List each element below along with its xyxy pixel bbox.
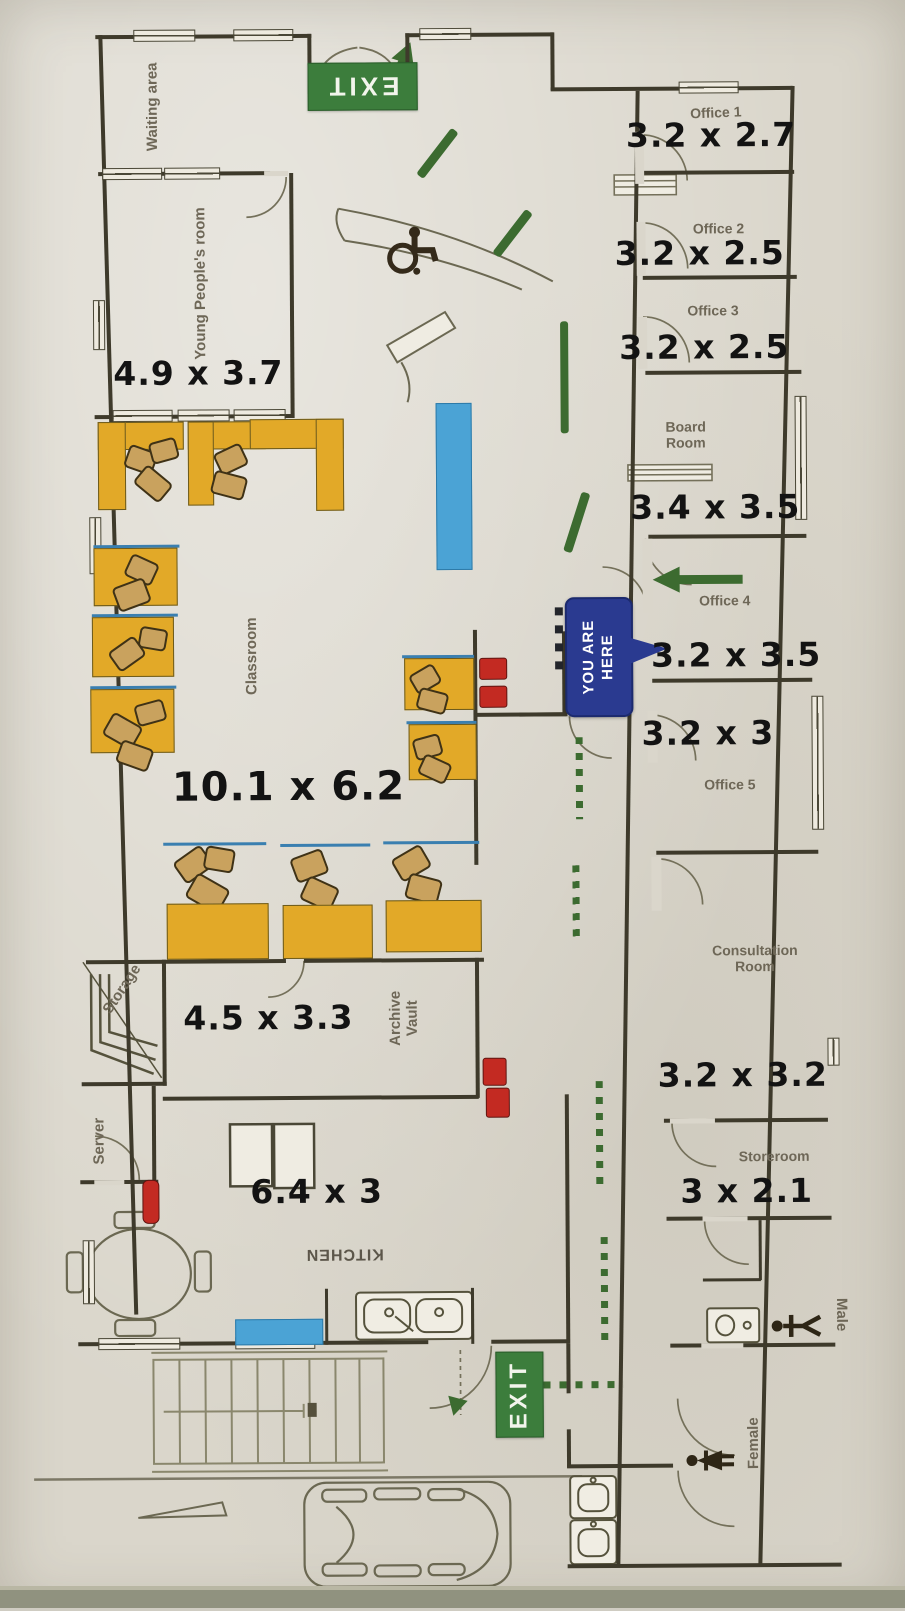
toilet-icon [707,1308,759,1342]
door-opening [651,857,661,911]
window [133,30,195,42]
red-chair [479,686,507,708]
route-dotted-path [544,1381,624,1388]
room-label-office4: Office 4 [689,592,761,608]
car-icon [304,1482,511,1587]
wall [471,1288,474,1344]
desk [167,903,269,960]
wall [759,1220,762,1280]
window [83,1240,95,1304]
room-label-boardroom: Board Room [654,418,718,454]
young-room-door-icon [246,177,286,217]
route-dotted-path [572,865,579,937]
stairs-icon [151,1351,388,1471]
route-arrow-left-icon [653,566,743,593]
wall [703,1278,761,1281]
dim-young: 4.9 x 3.7 [113,356,283,390]
fire-extinguisher-icon [486,1088,510,1118]
room-label-office5: Office 5 [694,776,766,792]
window [827,1038,839,1066]
room-label-male: Male [832,1283,850,1347]
wall [162,960,167,1086]
consultation-door-icon [656,858,702,904]
window [419,28,471,40]
you-are-here-text: YOU ARE HERE [567,599,632,715]
floor-plan: EXIT EXIT YOU ARE HERE Waiting area Youn… [0,0,905,1611]
window [98,1338,180,1351]
wall [567,1464,673,1469]
desk [283,904,373,959]
route-dotted-path [576,737,584,819]
room-label-kitchen: KITCHEN [299,1242,391,1263]
room-label-archive: Archive Vault [387,971,428,1066]
window [233,29,293,41]
basin-icons [570,1476,617,1564]
female-icon [686,1450,734,1470]
dim-office5: 3.2 x 3 [641,716,774,750]
sink-icon [356,1292,472,1340]
desk [316,419,345,511]
chair [137,626,168,652]
dim-consultation: 3.2 x 3.2 [658,1058,828,1092]
window [679,81,739,93]
room-label-consultation: Consultation Room [699,942,811,979]
window [811,696,824,830]
exit-sign-label: EXIT [507,1360,531,1429]
room-label-young: Young People's room [191,188,212,378]
room-label-office3: Office 3 [677,302,749,318]
wall [475,958,480,1098]
parking-line [34,1476,582,1479]
exit-sign-top: EXIT [307,62,417,111]
wall [491,1339,569,1343]
dim-storeroom: 3 x 2.1 [680,1174,813,1208]
room-label-storeroom: Storeroom [724,1148,824,1165]
bench [235,1319,323,1346]
chair [203,845,237,874]
door-opening [703,1216,748,1221]
fire-extinguisher-icon [483,1058,507,1086]
desk-edge [280,844,370,848]
desk [98,422,127,510]
dim-office4: 3.2 x 3.5 [651,638,821,672]
room-label-waiting: Waiting area [143,42,164,172]
scan-edge [0,1590,905,1608]
wall [325,1289,328,1345]
whiteboard [436,403,473,570]
female-door-icon [678,1398,735,1455]
fire-extinguisher-icon [142,1180,159,1224]
floor-plan-page: EXIT EXIT YOU ARE HERE Waiting area Youn… [0,0,905,1608]
dim-office3: 3.2 x 2.5 [619,330,789,364]
desk [188,421,215,505]
classroom-door-icon [268,961,304,997]
dim-office1: 3.2 x 2.7 [626,118,796,152]
wall [567,1429,571,1467]
exit-sign-bottom: EXIT [495,1351,544,1437]
male-door-icon [705,1220,749,1264]
reception-counter-icon [336,207,553,402]
room-label-server: Server [90,1104,108,1179]
window [178,409,230,421]
you-are-here-marker: YOU ARE HERE [565,597,634,717]
door-opening [94,1180,124,1185]
door-opening [642,539,652,613]
dim-archive: 4.5 x 3.3 [183,1001,353,1035]
window [113,410,173,422]
window [93,300,105,350]
storeroom-door-icon [672,1122,716,1166]
room-label-female: Female [745,1405,763,1481]
exit-sign-label: EXIT [326,73,400,99]
dim-boardroom: 3.4 x 3.5 [630,490,800,524]
marker-tick [555,643,563,651]
desk [386,900,482,953]
door-opening [264,171,288,176]
dim-office2: 3.2 x 2.5 [615,236,785,270]
dim-classroom: 10.1 x 6.2 [172,766,405,807]
marker-tick [555,661,563,669]
route-dotted-path [601,1237,609,1347]
wall [519,712,567,716]
female-door2-icon [678,1470,734,1526]
red-chair [479,658,507,680]
route-dotted-path [596,1081,604,1189]
door-opening [670,1118,715,1123]
window [164,167,220,179]
male-icon [772,1315,821,1337]
dim-kitchen: 6.4 x 3 [250,1174,383,1208]
wall [152,1086,157,1184]
marker-tick [555,625,563,633]
wall [550,32,554,90]
room-label-classroom: Classroom [243,596,264,716]
door-opening [701,1343,743,1348]
ramp-icon [138,1502,226,1518]
marker-tick [555,607,563,615]
desk-edge [163,842,266,846]
desk-edge [383,841,479,845]
